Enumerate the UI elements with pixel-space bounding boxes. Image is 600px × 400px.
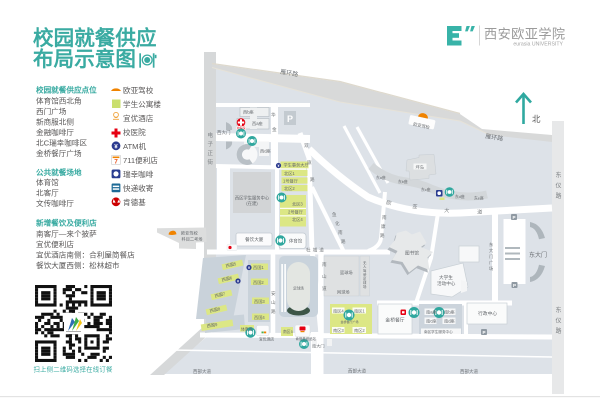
svg-text:西安欧亚学院: 西安欧亚学院 [484, 27, 566, 42]
svg-text:南: 南 [338, 229, 343, 235]
svg-text:山: 山 [271, 299, 276, 306]
svg-text:科目二考场: 科目二考场 [182, 236, 203, 243]
svg-text:南区2: 南区2 [354, 327, 365, 333]
svg-text:体育场: 体育场 [241, 327, 253, 332]
svg-text:体育馆: 体育馆 [289, 238, 303, 245]
svg-text:金桥餐厅广场: 金桥餐厅广场 [36, 148, 82, 158]
svg-text:北区2: 北区2 [284, 185, 295, 192]
svg-text:坪岛: 坪岛 [416, 163, 424, 170]
svg-text:eurasia UNIVERSITY: eurasia UNIVERSITY [513, 42, 563, 48]
svg-text:北: 北 [532, 114, 541, 124]
svg-text:瑞幸咖啡: 瑞幸咖啡 [123, 169, 154, 179]
svg-text:西b座: 西b座 [243, 109, 254, 116]
svg-text:东: 东 [556, 306, 562, 314]
svg-text:肯德基: 肯德基 [123, 197, 146, 207]
svg-text:公共就餐场地: 公共就餐场地 [36, 167, 82, 177]
svg-text:电: 电 [208, 131, 214, 139]
svg-text:7: 7 [114, 158, 118, 165]
svg-text:宜优酒店南侧：合利屋简餐店: 宜优酒店南侧：合利屋简餐店 [36, 250, 135, 260]
svg-text:北区4: 北区4 [292, 216, 303, 223]
svg-text:足球场: 足球场 [293, 286, 304, 291]
svg-text:新商服北侧: 新商服北侧 [36, 117, 74, 127]
svg-text:P: P [512, 215, 515, 220]
svg-text:路: 路 [556, 327, 562, 335]
svg-text:南区4: 南区4 [333, 308, 344, 314]
svg-text:餐饮大厦: 餐饮大厦 [245, 236, 264, 243]
svg-text:场: 场 [489, 265, 493, 272]
svg-text:¥: ¥ [237, 279, 239, 283]
svg-text:东d座: 东d座 [455, 194, 465, 199]
svg-text:P: P [513, 283, 516, 288]
svg-text:街: 街 [208, 158, 214, 166]
svg-text:新增餐饮及便利店: 新增餐饮及便利店 [36, 218, 97, 228]
svg-text:南区1: 南区1 [354, 308, 365, 314]
svg-text:¥: ¥ [114, 143, 118, 150]
svg-text:南区5: 南区5 [283, 329, 293, 334]
svg-text:宜优酒店: 宜优酒店 [123, 113, 154, 123]
svg-text:东b座: 东b座 [398, 179, 408, 184]
svg-text:(在建): (在建) [246, 200, 258, 207]
svg-text:学生事务大厅: 学生事务大厅 [284, 162, 309, 169]
svg-text:扫上侧二维码选择在线订餐: 扫上侧二维码选择在线订餐 [33, 365, 112, 374]
svg-text:金桥餐厅: 金桥餐厅 [385, 317, 404, 324]
svg-text:南区学生服务中心: 南区学生服务中心 [424, 329, 453, 334]
svg-text:路: 路 [271, 308, 276, 315]
svg-text:西门广场: 西门广场 [36, 106, 67, 116]
svg-text:2号餐厅: 2号餐厅 [288, 209, 303, 216]
svg-text:1号餐厅: 1号餐厅 [283, 178, 298, 185]
svg-text:布局示意图: 布局示意图 [33, 47, 136, 71]
svg-text:快递收寄: 快递收寄 [123, 183, 154, 193]
svg-text:北区3: 北区3 [292, 201, 303, 208]
svg-text:南: 南 [382, 214, 387, 220]
svg-text:路: 路 [341, 238, 346, 245]
svg-text:文传咖啡厅: 文传咖啡厅 [36, 198, 74, 208]
svg-text:¥: ¥ [248, 266, 250, 270]
svg-text:欧亚驾校: 欧亚驾校 [181, 230, 199, 237]
svg-text:大: 大 [489, 247, 493, 254]
svg-text:化: 化 [335, 220, 340, 227]
svg-text:体育馆: 体育馆 [36, 177, 59, 187]
svg-text:南a座: 南a座 [426, 309, 437, 316]
svg-text:校园就餐供应点位: 校园就餐供应点位 [36, 85, 97, 95]
svg-text:南: 南 [322, 261, 327, 267]
svg-text:东: 东 [489, 241, 493, 247]
svg-text:西部大道: 西部大道 [460, 368, 478, 375]
svg-text:南客厅—来个披萨: 南客厅—来个披萨 [36, 229, 97, 239]
svg-text:康: 康 [381, 223, 386, 229]
svg-text:体育馆西北角: 体育馆西北角 [36, 96, 82, 106]
svg-text:¥: ¥ [278, 164, 280, 168]
svg-text:亚: 亚 [412, 203, 418, 211]
svg-text:路: 路 [556, 192, 562, 200]
svg-text:广: 广 [489, 259, 493, 266]
svg-text:南大门: 南大门 [312, 343, 325, 350]
svg-text:欧亚驾校: 欧亚驾校 [123, 85, 154, 95]
svg-text:西大门: 西大门 [217, 129, 231, 136]
svg-text:北客厅: 北客厅 [36, 188, 59, 198]
svg-text:西部大道: 西部大道 [348, 368, 366, 375]
svg-text:杜城道: 杜城道 [306, 247, 326, 254]
svg-text:宜优便利店: 宜优便利店 [36, 239, 74, 249]
svg-text:西部大道: 西部大道 [193, 368, 211, 375]
svg-text:东a座: 东a座 [376, 175, 386, 180]
svg-text:仪: 仪 [556, 318, 562, 325]
svg-text:路: 路 [380, 232, 385, 239]
svg-text:西a座: 西a座 [252, 120, 263, 127]
svg-text:南b座: 南b座 [444, 309, 455, 316]
svg-text:校园就餐供应: 校园就餐供应 [33, 26, 157, 50]
svg-text:行政中心: 行政中心 [478, 310, 497, 317]
svg-text:大学生: 大学生 [439, 274, 453, 281]
svg-text:南d座: 南d座 [444, 318, 455, 325]
svg-text:华: 华 [271, 112, 276, 119]
svg-text:鱼: 鱼 [332, 211, 337, 217]
svg-text:南c座: 南c座 [426, 318, 436, 325]
svg-text:仪: 仪 [556, 183, 562, 190]
svg-text:东c座: 东c座 [421, 187, 431, 192]
svg-text:ATM机: ATM机 [123, 141, 146, 151]
svg-text:金融咖啡厅: 金融咖啡厅 [36, 127, 74, 137]
svg-text:子: 子 [208, 141, 214, 148]
svg-text:金: 金 [272, 126, 277, 132]
svg-text:山: 山 [322, 273, 327, 280]
svg-text:学生公寓楼: 学生公寓楼 [123, 99, 161, 109]
svg-text:安: 安 [271, 290, 276, 297]
svg-text:东e座: 东e座 [474, 196, 484, 201]
svg-text:篮球场: 篮球场 [340, 269, 353, 276]
svg-text:网球场: 网球场 [337, 289, 350, 296]
svg-text:711便利店: 711便利店 [123, 155, 158, 165]
svg-text:校医院: 校医院 [123, 127, 146, 137]
svg-text:活动中心: 活动中心 [437, 280, 456, 287]
svg-text:南区3: 南区3 [333, 327, 344, 333]
svg-text:金桥餐厅广场: 金桥餐厅广场 [340, 319, 358, 324]
svg-text:北区1: 北区1 [284, 170, 295, 177]
svg-text:道: 道 [322, 285, 327, 292]
svg-text:路: 路 [310, 176, 315, 183]
svg-text:门: 门 [489, 253, 493, 260]
svg-text:东大门: 东大门 [529, 251, 547, 259]
svg-text:餐饮大厦西侧：松林超市: 餐饮大厦西侧：松林超市 [36, 260, 120, 270]
svg-text:东: 东 [556, 171, 562, 179]
svg-text:图书馆: 图书馆 [405, 250, 419, 257]
svg-text:肯德基甜品站: 肯德基甜品站 [296, 336, 317, 341]
svg-text:正: 正 [208, 150, 214, 157]
svg-text:北C瑞幸咖啡区: 北C瑞幸咖啡区 [36, 138, 87, 148]
svg-text:P: P [287, 114, 293, 124]
svg-text:宜优酒店: 宜优酒店 [259, 337, 274, 342]
svg-text:P: P [482, 330, 485, 335]
svg-text:西d座: 西d座 [260, 148, 271, 155]
